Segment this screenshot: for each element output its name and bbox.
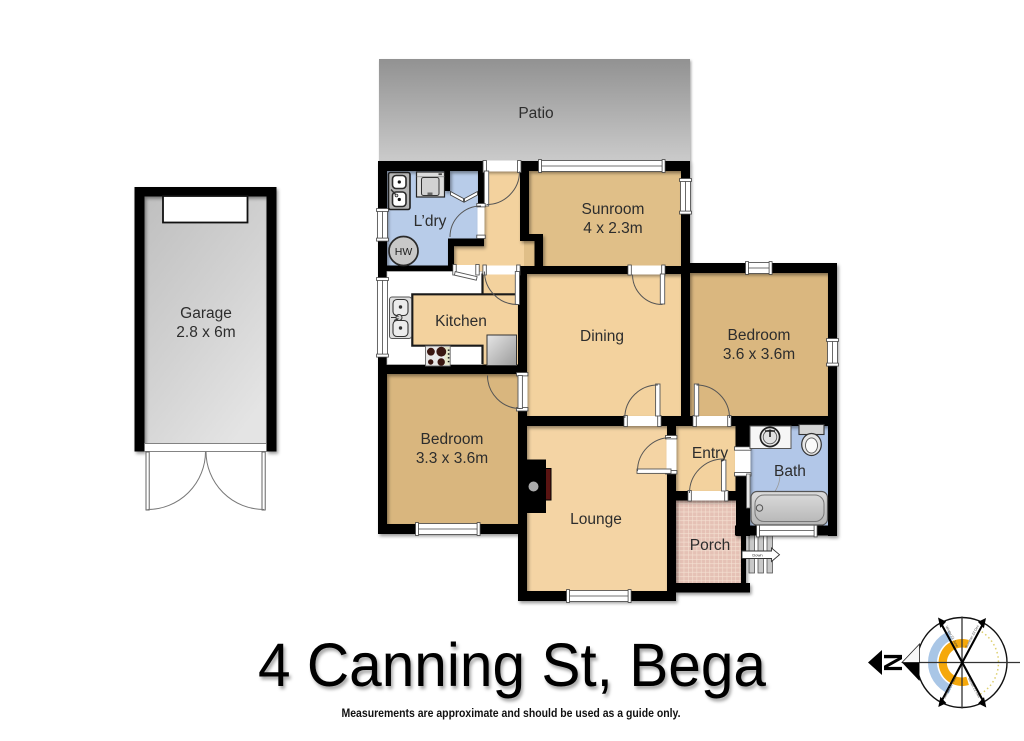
svg-text:Kitchen: Kitchen <box>435 313 487 330</box>
svg-text:2.8 x 6m: 2.8 x 6m <box>176 324 235 341</box>
svg-text:Bath: Bath <box>774 463 806 480</box>
svg-text:L’dry: L’dry <box>414 213 447 230</box>
svg-text:Garage: Garage <box>180 305 232 322</box>
svg-text:Bedroom: Bedroom <box>421 431 484 448</box>
svg-text:Measurements are approximate a: Measurements are approximate and should … <box>342 706 681 720</box>
svg-text:Entry: Entry <box>692 445 728 462</box>
svg-text:Lounge: Lounge <box>570 511 622 528</box>
svg-text:4 x 2.3m: 4 x 2.3m <box>583 220 642 237</box>
svg-text:Bedroom: Bedroom <box>728 327 791 344</box>
svg-text:3.3 x 3.6m: 3.3 x 3.6m <box>416 450 488 467</box>
svg-text:Down: Down <box>752 552 762 557</box>
svg-text:4 Canning St, Bega: 4 Canning St, Bega <box>258 631 766 699</box>
svg-text:HW: HW <box>395 246 413 258</box>
svg-text:Sunroom: Sunroom <box>582 201 645 218</box>
svg-text:Patio: Patio <box>518 105 553 122</box>
svg-text:Porch: Porch <box>690 537 731 554</box>
svg-text:N: N <box>878 653 908 672</box>
svg-text:3.6 x 3.6m: 3.6 x 3.6m <box>723 346 795 363</box>
svg-text:Dining: Dining <box>580 328 624 345</box>
